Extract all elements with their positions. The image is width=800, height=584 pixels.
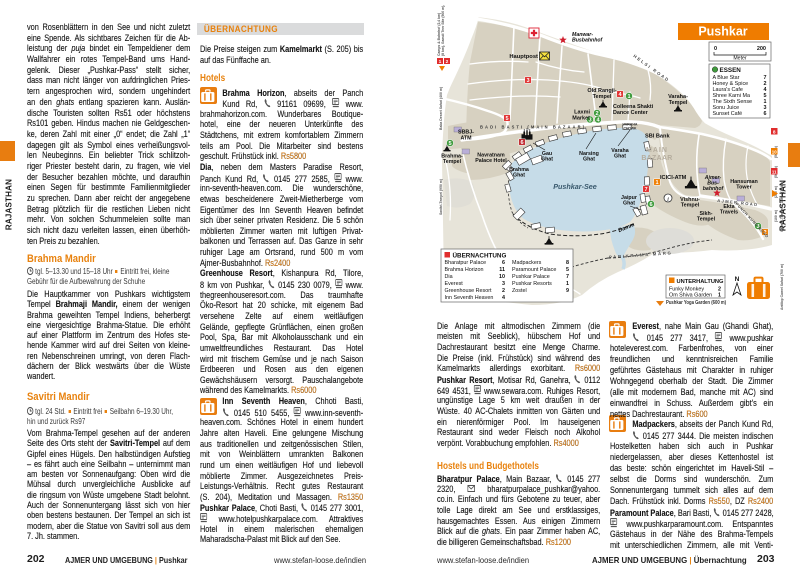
- svg-text:Ghat: Ghat: [513, 173, 525, 179]
- svg-text:Hauptpost: Hauptpost: [509, 54, 538, 60]
- svg-text:Greenhouse Resort: Greenhouse Resort: [445, 288, 493, 294]
- svg-text:UNTERHALTUNG: UNTERHALTUNG: [677, 279, 725, 285]
- svg-text:2: 2: [446, 59, 449, 65]
- svg-text:4: 4: [502, 295, 505, 301]
- svg-text:1: 1: [566, 281, 569, 287]
- svg-text:5: 5: [448, 141, 451, 147]
- svg-text:BAZAAR: BAZAAR: [641, 155, 672, 162]
- svg-text:Tempel: Tempel: [443, 159, 462, 165]
- svg-text:i: i: [667, 196, 669, 203]
- svg-text:Meter: Meter: [733, 56, 747, 62]
- svg-text:Tempel: Tempel: [669, 100, 688, 106]
- svg-text:Ghat: Ghat: [541, 157, 553, 163]
- svg-text:ÜBERNACHTUNG: ÜBERNACHTUNG: [453, 251, 507, 260]
- svg-text:5: 5: [566, 267, 569, 273]
- svg-text:bahnhof: bahnhof: [703, 186, 725, 192]
- svg-text:200: 200: [757, 46, 766, 52]
- svg-text:Ghat: Ghat: [623, 201, 635, 207]
- svg-text:Dance Center: Dance Center: [613, 110, 649, 116]
- svg-text:Travels: Travels: [720, 210, 738, 216]
- svg-text:Everest: Everest: [445, 281, 464, 287]
- svg-text:8: 8: [566, 260, 569, 266]
- svg-text:Om Shiva Garden: Om Shiva Garden: [669, 293, 712, 299]
- svg-text:Tower: Tower: [736, 185, 752, 191]
- svg-text:Antilop Camel Safari (700 m): Antilop Camel Safari (700 m): [780, 264, 784, 310]
- svg-text:10: 10: [499, 274, 505, 280]
- svg-text:2: 2: [502, 288, 505, 294]
- svg-text:MAIN: MAIN: [646, 147, 668, 154]
- svg-text:CHOWK: CHOWK: [624, 127, 637, 131]
- svg-text:3: 3: [526, 78, 529, 84]
- svg-text:11: 11: [772, 169, 777, 174]
- svg-text:Baba Desert Safari (400 m): Baba Desert Safari (400 m): [439, 87, 443, 130]
- svg-text:Pushkar: Pushkar: [698, 25, 747, 39]
- svg-text:9: 9: [566, 288, 569, 294]
- svg-text:6: 6: [649, 202, 652, 208]
- svg-text:ESSEN: ESSEN: [720, 67, 742, 74]
- svg-text:Sunset Café: Sunset Café: [713, 111, 743, 117]
- svg-text:Paramount Palace: Paramount Palace: [512, 267, 556, 273]
- svg-text:Tempel: Tempel: [681, 203, 700, 209]
- svg-text:7: 7: [566, 274, 569, 280]
- svg-text:Market: Market: [572, 115, 590, 121]
- svg-text:Madpackers: Madpackers: [512, 260, 542, 266]
- svg-text:Gayatri-Tempel & Ajmer (13 km): Gayatri-Tempel & Ajmer (13 km): [780, 181, 784, 232]
- svg-text:N: N: [735, 276, 740, 283]
- svg-text:3: 3: [502, 281, 505, 287]
- svg-text:6: 6: [520, 140, 523, 146]
- svg-text:Ghat: Ghat: [614, 154, 626, 160]
- svg-text:7: 7: [644, 187, 647, 193]
- svg-text:Dia: Dia: [445, 274, 453, 280]
- svg-text:Brahma Horizon: Brahma Horizon: [445, 267, 484, 273]
- svg-text:Palace Hotel: Palace Hotel: [475, 158, 507, 164]
- svg-text:Busbahnhof: Busbahnhof: [572, 38, 604, 44]
- svg-text:Bharatpur Palace: Bharatpur Palace: [445, 260, 487, 266]
- svg-text:Tempel: Tempel: [697, 217, 716, 223]
- svg-text:Pushkar Palace: Pushkar Palace: [512, 274, 550, 280]
- svg-text:Tempel: Tempel: [593, 94, 612, 100]
- svg-text:1: 1: [439, 59, 442, 65]
- svg-text:8: 8: [773, 129, 776, 135]
- svg-text:Savitri-Tempel (950 m): Savitri-Tempel (950 m): [439, 179, 443, 215]
- svg-text:0: 0: [714, 46, 717, 52]
- svg-text:1: 1: [655, 180, 658, 186]
- svg-text:Ghat: Ghat: [583, 157, 595, 163]
- svg-text:(100 m): (100 m): [774, 210, 778, 222]
- svg-text:Pushkar-See: Pushkar-See: [553, 182, 597, 191]
- svg-text:5: 5: [505, 116, 508, 122]
- svg-text:ATM: ATM: [460, 135, 472, 141]
- svg-text:Camps & Bahnhof (2,4 km): Camps & Bahnhof (2,4 km): [437, 13, 441, 56]
- svg-text:6: 6: [764, 111, 767, 117]
- svg-text:(8 km), Gamdi Teer Site (500 m: (8 km), Gamdi Teer Site (500 m),: [441, 5, 445, 56]
- svg-text:1: 1: [627, 94, 630, 100]
- svg-text:6: 6: [502, 260, 505, 266]
- svg-text:11: 11: [499, 267, 505, 273]
- svg-text:Pushkar Resorts: Pushkar Resorts: [512, 281, 552, 287]
- svg-text:BADI BASTI (MAIN BAZAAR): BADI BASTI (MAIN BAZAAR): [480, 125, 585, 130]
- svg-text:1: 1: [718, 293, 721, 299]
- svg-text:SBI Bank: SBI Bank: [645, 134, 670, 140]
- svg-text:10: 10: [772, 149, 777, 154]
- svg-text:Zostel: Zostel: [512, 288, 527, 294]
- svg-text:Inn Seventh Heaven: Inn Seventh Heaven: [445, 295, 494, 301]
- svg-text:ICICI-ATM: ICICI-ATM: [660, 175, 687, 181]
